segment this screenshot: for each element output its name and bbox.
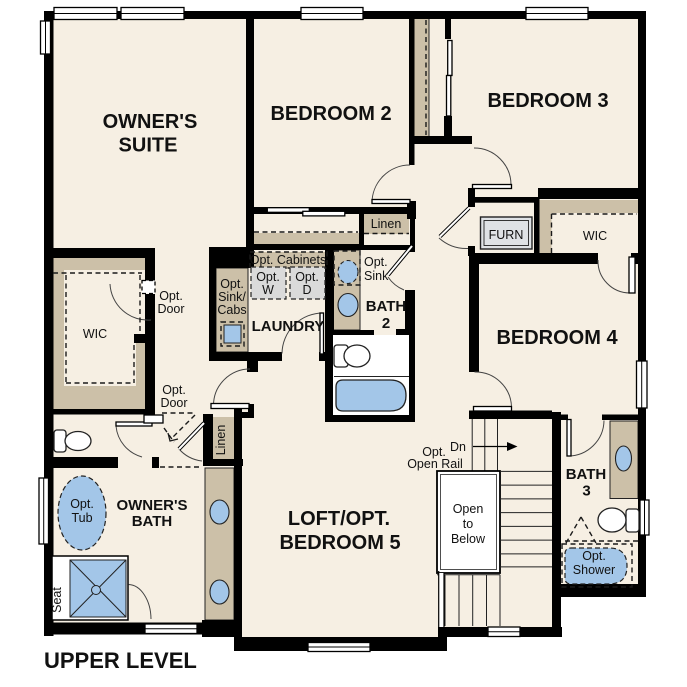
svg-text:Seat: Seat (50, 587, 64, 613)
svg-text:BATH: BATH (132, 513, 173, 530)
svg-text:FURN: FURN (489, 228, 524, 242)
svg-text:BEDROOM 4: BEDROOM 4 (496, 327, 618, 349)
svg-text:LOFT/OPT.: LOFT/OPT. (288, 508, 390, 530)
svg-text:W: W (262, 283, 274, 297)
svg-text:Door: Door (157, 302, 184, 316)
svg-text:Opt.: Opt. (159, 289, 183, 303)
svg-text:LAUNDRY: LAUNDRY (252, 318, 325, 335)
svg-text:Tub: Tub (71, 511, 92, 525)
svg-text:Below: Below (451, 532, 486, 546)
svg-text:Cabs: Cabs (217, 303, 246, 317)
svg-text:Shower: Shower (573, 563, 615, 577)
svg-text:to: to (463, 517, 473, 531)
svg-text:Linen: Linen (371, 217, 402, 231)
svg-text:Opt.: Opt. (70, 497, 94, 511)
svg-text:Opt.: Opt. (582, 549, 606, 563)
svg-text:Opt.: Opt. (295, 270, 319, 284)
svg-text:Opt.: Opt. (162, 383, 186, 397)
svg-text:BEDROOM 2: BEDROOM 2 (270, 103, 391, 125)
svg-text:Open: Open (453, 502, 484, 516)
svg-text:D: D (302, 283, 311, 297)
svg-text:Dn: Dn (450, 440, 466, 454)
svg-text:OWNER'S: OWNER'S (116, 497, 187, 514)
svg-text:Opt.: Opt. (256, 270, 280, 284)
svg-text:3: 3 (582, 483, 590, 500)
svg-text:Linen: Linen (214, 425, 228, 456)
svg-text:BEDROOM 3: BEDROOM 3 (487, 90, 608, 112)
svg-text:SUITE: SUITE (119, 135, 178, 157)
svg-text:BEDROOM 5: BEDROOM 5 (279, 532, 400, 554)
svg-text:Door: Door (160, 396, 187, 410)
svg-text:2: 2 (382, 315, 390, 332)
svg-text:BATH: BATH (566, 466, 607, 483)
svg-text:OWNER'S: OWNER'S (103, 111, 198, 133)
svg-text:WIC: WIC (583, 229, 607, 243)
svg-text:Sink: Sink (364, 269, 389, 283)
svg-text:Opt.: Opt. (220, 277, 244, 291)
svg-text:Sink/: Sink/ (218, 290, 246, 304)
svg-text:UPPER LEVEL: UPPER LEVEL (44, 648, 197, 673)
svg-text:Opt.: Opt. (364, 255, 388, 269)
svg-text:WIC: WIC (83, 327, 107, 341)
svg-text:Opt. Cabinets: Opt. Cabinets (250, 253, 326, 267)
svg-text:BATH: BATH (366, 298, 407, 315)
svg-text:Open Rail: Open Rail (407, 457, 463, 471)
